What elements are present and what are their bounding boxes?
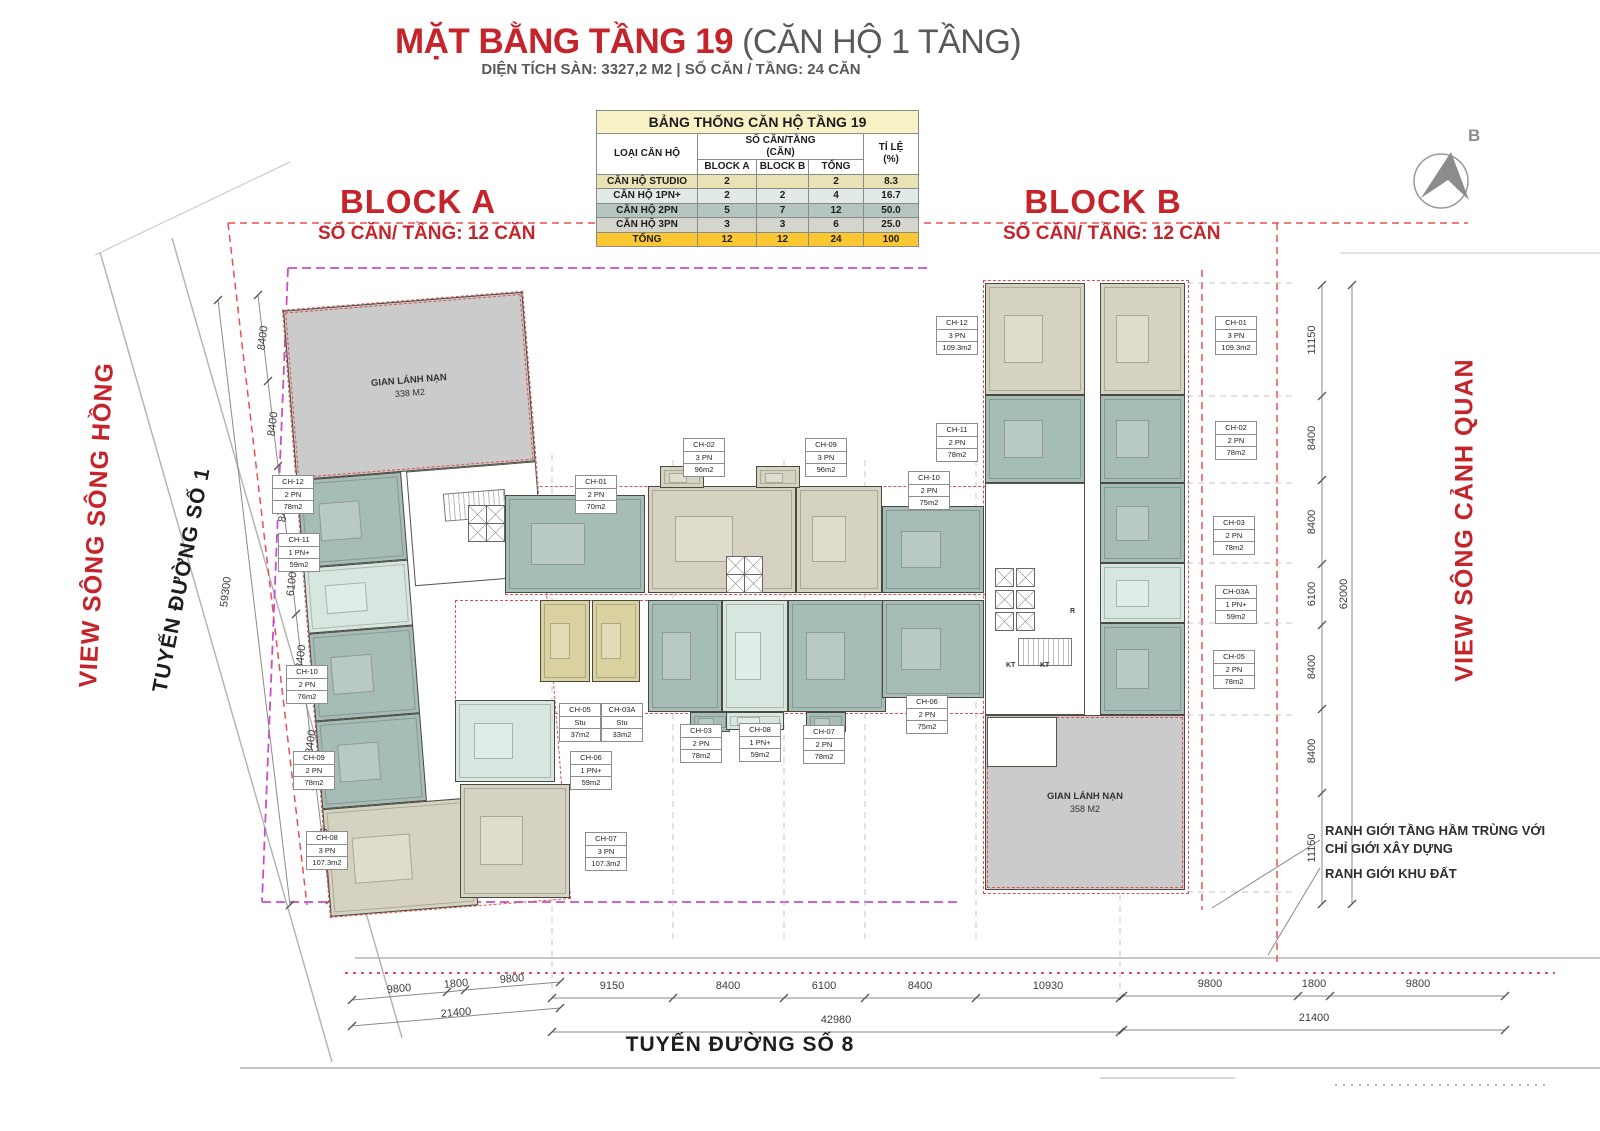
unit-label-row: 70m2 bbox=[576, 501, 616, 513]
unit-label-row: 59m2 bbox=[571, 777, 611, 789]
unit-B-CH-07 bbox=[788, 600, 886, 712]
unit-label-row: CH-06 bbox=[571, 752, 611, 765]
unit-label-row: CH-10 bbox=[287, 666, 327, 679]
unit-label-row: CH-06 bbox=[907, 696, 947, 709]
dimension-label: 9150 bbox=[600, 980, 624, 992]
table-cell: CĂN HỘ STUDIO bbox=[597, 174, 698, 189]
unit-label-row: 2 PN bbox=[937, 437, 977, 450]
table-cell: 2 bbox=[698, 189, 757, 204]
unit-label-row: 3 PN bbox=[1216, 330, 1256, 343]
block-b-service-room bbox=[987, 717, 1057, 767]
unit-label-B-CH-03A: CH-03A1 PN+59m2 bbox=[1215, 585, 1257, 624]
table-cell: 12 bbox=[757, 232, 809, 247]
table-cell: 5 bbox=[698, 203, 757, 218]
unit-label-row: 2 PN bbox=[576, 489, 616, 502]
unit-label-A-CH-11: CH-111 PN+59m2 bbox=[278, 533, 320, 572]
table-cell: CĂN HỘ 1PN+ bbox=[597, 189, 698, 204]
dimension-label: 9800 bbox=[499, 972, 524, 986]
unit-label-row: 78m2 bbox=[1216, 447, 1256, 459]
elevator-icon bbox=[995, 612, 1014, 631]
unit-label-row: 75m2 bbox=[909, 497, 949, 509]
unit-B-CH-05 bbox=[1100, 623, 1185, 715]
unit-label-A-CH-07: CH-073 PN107.3m2 bbox=[585, 832, 627, 871]
block-b-name: BLOCK B bbox=[1003, 183, 1203, 221]
unit-label-row: 96m2 bbox=[806, 464, 846, 476]
unit-B-CH-03A bbox=[1100, 563, 1185, 623]
table-cell: 2 bbox=[757, 189, 809, 204]
table-cell: 25.0 bbox=[864, 218, 919, 233]
unit-label-row: 78m2 bbox=[681, 750, 721, 762]
table-cell: CĂN HỘ 3PN bbox=[597, 218, 698, 233]
unit-label-row: 1 PN+ bbox=[1216, 599, 1256, 612]
table-cell bbox=[757, 174, 809, 189]
block-a-label: BLOCK A SỐ CĂN/ TẦNG: 12 CĂN bbox=[318, 183, 518, 245]
unit-label-A-CH-03: CH-032 PN78m2 bbox=[680, 724, 722, 763]
unit-label-row: CH-03 bbox=[1214, 517, 1254, 530]
unit-label-row: Stu bbox=[602, 717, 642, 730]
unit-label-A-CH-10: CH-102 PN76m2 bbox=[286, 665, 328, 704]
unit-label-row: 37m2 bbox=[560, 729, 600, 741]
unit-summary-table: BẢNG THỐNG CĂN HỘ TẦNG 19 LOẠI CĂN HỘ SỐ… bbox=[596, 110, 919, 247]
table-cell: 2 bbox=[809, 174, 864, 189]
block-a-name: BLOCK A bbox=[318, 183, 518, 221]
unit-B-CH-08 bbox=[722, 600, 788, 712]
unit-label-row: 109.3m2 bbox=[1216, 342, 1256, 354]
table-cell: 12 bbox=[809, 203, 864, 218]
note-basement-boundary: RANH GIỚI TẦNG HẦM TRÙNG VỚICHỈ GIỚI XÂY… bbox=[1325, 822, 1545, 857]
boundary-notes: RANH GIỚI TẦNG HẦM TRÙNG VỚICHỈ GIỚI XÂY… bbox=[1325, 822, 1545, 883]
unit-label-row: 76m2 bbox=[287, 691, 327, 703]
table-cell: 12 bbox=[698, 232, 757, 247]
unit-label-row: 78m2 bbox=[1214, 676, 1254, 688]
count-group-line2: (CĂN) bbox=[766, 147, 794, 158]
dimension-label: 11150 bbox=[1306, 326, 1318, 355]
refuge-area-block-a: GIAN LÁNH NẠN 338 M2 bbox=[283, 292, 536, 480]
unit-A-CH-02 bbox=[648, 486, 796, 593]
unit-label-row: 2 PN bbox=[907, 709, 947, 722]
table-cell: CĂN HỘ 2PN bbox=[597, 203, 698, 218]
table-cell: 3 bbox=[698, 218, 757, 233]
road-label-bottom: TUYẾN ĐƯỜNG SỐ 8 bbox=[626, 1033, 855, 1057]
unit-label-row: 59m2 bbox=[279, 559, 319, 571]
unit-label-row: CH-07 bbox=[586, 833, 626, 846]
facade-bump bbox=[756, 466, 800, 488]
core-label: KT bbox=[1006, 662, 1015, 669]
table-cell: 4 bbox=[809, 189, 864, 204]
dimension-label: 6100 bbox=[812, 980, 836, 992]
table-header-block-b: BLOCK B bbox=[757, 160, 809, 175]
unit-label-A-CH-05: CH-05Stu37m2 bbox=[559, 703, 601, 742]
table-cell: 100 bbox=[864, 232, 919, 247]
unit-label-A-CH-08: CH-083 PN107.3m2 bbox=[306, 831, 348, 870]
unit-label-row: CH-03 bbox=[681, 725, 721, 738]
dimension-label: 8400 bbox=[1306, 426, 1318, 450]
unit-label-row: CH-05 bbox=[560, 704, 600, 717]
dimension-label: 11150 bbox=[1306, 834, 1318, 863]
unit-label-B-CH-01: CH-013 PN109.3m2 bbox=[1215, 316, 1257, 355]
unit-label-row: CH-05 bbox=[1214, 651, 1254, 664]
table-title: BẢNG THỐNG CĂN HỘ TẦNG 19 bbox=[597, 111, 919, 134]
unit-label-row: 1 PN+ bbox=[740, 737, 780, 750]
unit-label-A-CH-06: CH-061 PN+59m2 bbox=[570, 751, 612, 790]
unit-label-row: 78m2 bbox=[804, 751, 844, 763]
unit-label-row: 2 PN bbox=[1214, 530, 1254, 543]
unit-B-CH-10 bbox=[882, 506, 984, 593]
unit-label-row: 2 PN bbox=[287, 679, 327, 692]
elevator-icon bbox=[744, 574, 763, 593]
unit-A-CH-03 bbox=[648, 600, 722, 712]
unit-label-A-CH-02: CH-023 PN96m2 bbox=[683, 438, 725, 477]
unit-label-B-CH-08: CH-081 PN+59m2 bbox=[739, 723, 781, 762]
unit-label-B-CH-10: CH-102 PN75m2 bbox=[908, 471, 950, 510]
unit-label-row: CH-02 bbox=[1216, 422, 1256, 435]
unit-label-row: 2 PN bbox=[1214, 664, 1254, 677]
elevator-icon bbox=[995, 590, 1014, 609]
unit-A-CH-05 bbox=[540, 600, 590, 682]
block-b-count: SỐ CĂN/ TẦNG: 12 CĂN bbox=[1003, 223, 1203, 245]
elevator-icon bbox=[726, 574, 745, 593]
floor-plan-page: GIAN LÁNH NẠN 338 M2 GIAN LÁNH NẠN 358 M… bbox=[0, 0, 1600, 1131]
unit-label-row: 3 PN bbox=[307, 845, 347, 858]
table-cell: 50.0 bbox=[864, 203, 919, 218]
dimension-label: 8400 bbox=[1306, 510, 1318, 534]
unit-label-row: CH-11 bbox=[279, 534, 319, 547]
unit-B-CH-01 bbox=[1100, 283, 1185, 395]
unit-label-B-CH-12: CH-123 PN109.3m2 bbox=[936, 316, 978, 355]
unit-label-B-CH-11: CH-112 PN78m2 bbox=[936, 423, 978, 462]
count-group-line1: SỐ CĂN/TẦNG bbox=[746, 135, 816, 146]
table-header-total: TỔNG bbox=[809, 160, 864, 175]
unit-label-row: CH-01 bbox=[1216, 317, 1256, 330]
unit-label-row: CH-12 bbox=[273, 476, 313, 489]
dimension-label: 8400 bbox=[716, 980, 740, 992]
dimension-label: 10930 bbox=[1033, 980, 1064, 992]
unit-label-row: CH-08 bbox=[307, 832, 347, 845]
unit-label-row: CH-07 bbox=[804, 726, 844, 739]
unit-A-CH-06 bbox=[455, 700, 555, 782]
note-leader-2 bbox=[1268, 868, 1320, 955]
table-row: CĂN HỘ 2PN571250.0 bbox=[597, 203, 919, 218]
elevator-icon bbox=[995, 568, 1014, 587]
unit-label-B-CH-03: CH-032 PN78m2 bbox=[1213, 516, 1255, 555]
unit-label-row: 78m2 bbox=[937, 449, 977, 461]
unit-label-row: CH-08 bbox=[740, 724, 780, 737]
unit-label-row: Stu bbox=[560, 717, 600, 730]
unit-label-B-CH-05: CH-052 PN78m2 bbox=[1213, 650, 1255, 689]
unit-A-CH-07 bbox=[460, 784, 570, 898]
corner-line bbox=[95, 162, 290, 255]
elevator-icon bbox=[1016, 568, 1035, 587]
view-label-right: VIEW SÔNG CẢNH QUAN bbox=[1451, 358, 1480, 681]
table-header-count-group: SỐ CĂN/TẦNG(CĂN) bbox=[698, 134, 864, 160]
dimension-label: 1800 bbox=[443, 977, 468, 991]
unit-B-CH-02 bbox=[1100, 395, 1185, 483]
elevator-icon bbox=[1016, 612, 1035, 631]
unit-label-row: 3 PN bbox=[937, 330, 977, 343]
ratio-line1: TỈ LỆ bbox=[879, 142, 903, 153]
core-label: KT bbox=[1040, 662, 1049, 669]
unit-B-CH-11 bbox=[985, 395, 1085, 483]
elevator-icon bbox=[486, 523, 505, 542]
unit-label-row: 2 PN bbox=[804, 739, 844, 752]
dimension-label: 21400 bbox=[1299, 1012, 1330, 1024]
ratio-line2: (%) bbox=[883, 154, 899, 165]
unit-label-row: 1 PN+ bbox=[279, 547, 319, 560]
refuge-a-area: 338 M2 bbox=[394, 386, 425, 398]
unit-label-row: 3 PN bbox=[586, 846, 626, 859]
elevator-icon bbox=[468, 505, 487, 524]
unit-label-row: CH-10 bbox=[909, 472, 949, 485]
unit-label-row: CH-03A bbox=[602, 704, 642, 717]
compass-icon bbox=[1414, 152, 1469, 208]
dimension-label: 9800 bbox=[1198, 978, 1222, 990]
dimension-label: 9800 bbox=[386, 982, 411, 996]
table-row: CĂN HỘ STUDIO228.3 bbox=[597, 174, 919, 189]
page-title-main: MẶT BẰNG TẦNG 19 bbox=[395, 22, 733, 61]
refuge-a-name: GIAN LÁNH NẠN bbox=[371, 372, 448, 389]
dimension-label: 9800 bbox=[1406, 978, 1430, 990]
table-total-row: TỔNG121224100 bbox=[597, 232, 919, 247]
unit-B-CH-09 bbox=[796, 486, 882, 593]
unit-label-row: 59m2 bbox=[740, 749, 780, 761]
unit-label-row: CH-09 bbox=[294, 752, 334, 765]
unit-label-A-CH-12: CH-122 PN78m2 bbox=[272, 475, 314, 514]
table-cell: 8.3 bbox=[864, 174, 919, 189]
dimension-label: 6100 bbox=[1306, 582, 1318, 606]
refuge-b-area: 358 M2 bbox=[1070, 804, 1100, 814]
table-cell: 7 bbox=[757, 203, 809, 218]
unit-label-row: 78m2 bbox=[294, 777, 334, 789]
unit-label-row: CH-03A bbox=[1216, 586, 1256, 599]
unit-label-A-CH-09: CH-092 PN78m2 bbox=[293, 751, 335, 790]
unit-label-row: 2 PN bbox=[1216, 435, 1256, 448]
table-cell: 24 bbox=[809, 232, 864, 247]
page-title-suffix: (CĂN HỘ 1 TẦNG) bbox=[733, 23, 1021, 61]
unit-label-row: 96m2 bbox=[684, 464, 724, 476]
dimension-label: 8400 bbox=[1306, 739, 1318, 763]
dimension-label: 1800 bbox=[1302, 978, 1326, 990]
unit-label-row: 109.3m2 bbox=[937, 342, 977, 354]
table-cell: 2 bbox=[698, 174, 757, 189]
unit-label-row: 2 PN bbox=[909, 485, 949, 498]
elevator-icon bbox=[744, 556, 763, 575]
table-header-ratio: TỈ LỆ(%) bbox=[864, 134, 919, 175]
compass-north-label: B bbox=[1468, 126, 1480, 146]
unit-label-row: 33m2 bbox=[602, 729, 642, 741]
dimension-label: 8400 bbox=[908, 980, 932, 992]
table-header-block-a: BLOCK A bbox=[698, 160, 757, 175]
note-site-boundary: RANH GIỚI KHU ĐẤT bbox=[1325, 865, 1545, 883]
unit-label-row: 1 PN+ bbox=[571, 765, 611, 778]
dimension-label: 42980 bbox=[821, 1014, 852, 1026]
block-b-label: BLOCK B SỐ CĂN/ TẦNG: 12 CĂN bbox=[1003, 183, 1203, 245]
unit-B-CH-03 bbox=[1100, 483, 1185, 563]
table-row: CĂN HỘ 1PN+22416.7 bbox=[597, 189, 919, 204]
block-a-count: SỐ CĂN/ TẦNG: 12 CĂN bbox=[318, 223, 518, 245]
unit-label-row: CH-02 bbox=[684, 439, 724, 452]
unit-label-row: CH-11 bbox=[937, 424, 977, 437]
table-cell: 16.7 bbox=[864, 189, 919, 204]
unit-label-row: CH-12 bbox=[937, 317, 977, 330]
unit-label-B-CH-07: CH-072 PN78m2 bbox=[803, 725, 845, 764]
core-label: R bbox=[1070, 608, 1075, 615]
unit-label-B-CH-09: CH-093 PN96m2 bbox=[805, 438, 847, 477]
summary-table-body: CĂN HỘ STUDIO228.3CĂN HỘ 1PN+22416.7CĂN … bbox=[597, 174, 919, 247]
unit-B-CH-06 bbox=[882, 600, 984, 698]
page-title: MẶT BẰNG TẦNG 19 (CĂN HỘ 1 TẦNG) bbox=[395, 22, 995, 62]
table-cell: TỔNG bbox=[597, 232, 698, 247]
refuge-b-name: GIAN LÁNH NẠN bbox=[1047, 791, 1123, 802]
table-row: CĂN HỘ 3PN33625.0 bbox=[597, 218, 919, 233]
unit-label-row: 2 PN bbox=[273, 489, 313, 502]
unit-label-A-CH-03A: CH-03AStu33m2 bbox=[601, 703, 643, 742]
unit-label-row: 3 PN bbox=[806, 452, 846, 465]
elevator-icon bbox=[468, 523, 487, 542]
note-leader-1 bbox=[1212, 840, 1320, 908]
unit-label-row: CH-01 bbox=[576, 476, 616, 489]
unit-label-row: 59m2 bbox=[1216, 611, 1256, 623]
unit-B-CH-12 bbox=[985, 283, 1085, 395]
unit-label-B-CH-06: CH-062 PN75m2 bbox=[906, 695, 948, 734]
unit-label-row: 2 PN bbox=[294, 765, 334, 778]
unit-label-row: 78m2 bbox=[273, 501, 313, 513]
unit-label-B-CH-02: CH-022 PN78m2 bbox=[1215, 421, 1257, 460]
unit-label-row: 2 PN bbox=[681, 738, 721, 751]
unit-label-row: CH-09 bbox=[806, 439, 846, 452]
unit-A-CH-03A bbox=[592, 600, 640, 682]
unit-label-row: 3 PN bbox=[684, 452, 724, 465]
table-cell: 6 bbox=[809, 218, 864, 233]
elevator-icon bbox=[1016, 590, 1035, 609]
unit-label-row: 107.3m2 bbox=[586, 858, 626, 870]
elevator-icon bbox=[726, 556, 745, 575]
unit-label-A-CH-01: CH-012 PN70m2 bbox=[575, 475, 617, 514]
page-subtitle: DIỆN TÍCH SÀN: 3327,2 M2 | SỐ CĂN / TẦNG… bbox=[371, 61, 971, 78]
dimension-label: 62000 bbox=[1338, 579, 1350, 610]
table-cell: 3 bbox=[757, 218, 809, 233]
unit-label-row: 78m2 bbox=[1214, 542, 1254, 554]
dimension-label: 8400 bbox=[1306, 655, 1318, 679]
elevator-icon bbox=[486, 505, 505, 524]
unit-label-row: 75m2 bbox=[907, 721, 947, 733]
unit-label-row: 107.3m2 bbox=[307, 857, 347, 869]
table-header-type: LOẠI CĂN HỘ bbox=[597, 134, 698, 175]
